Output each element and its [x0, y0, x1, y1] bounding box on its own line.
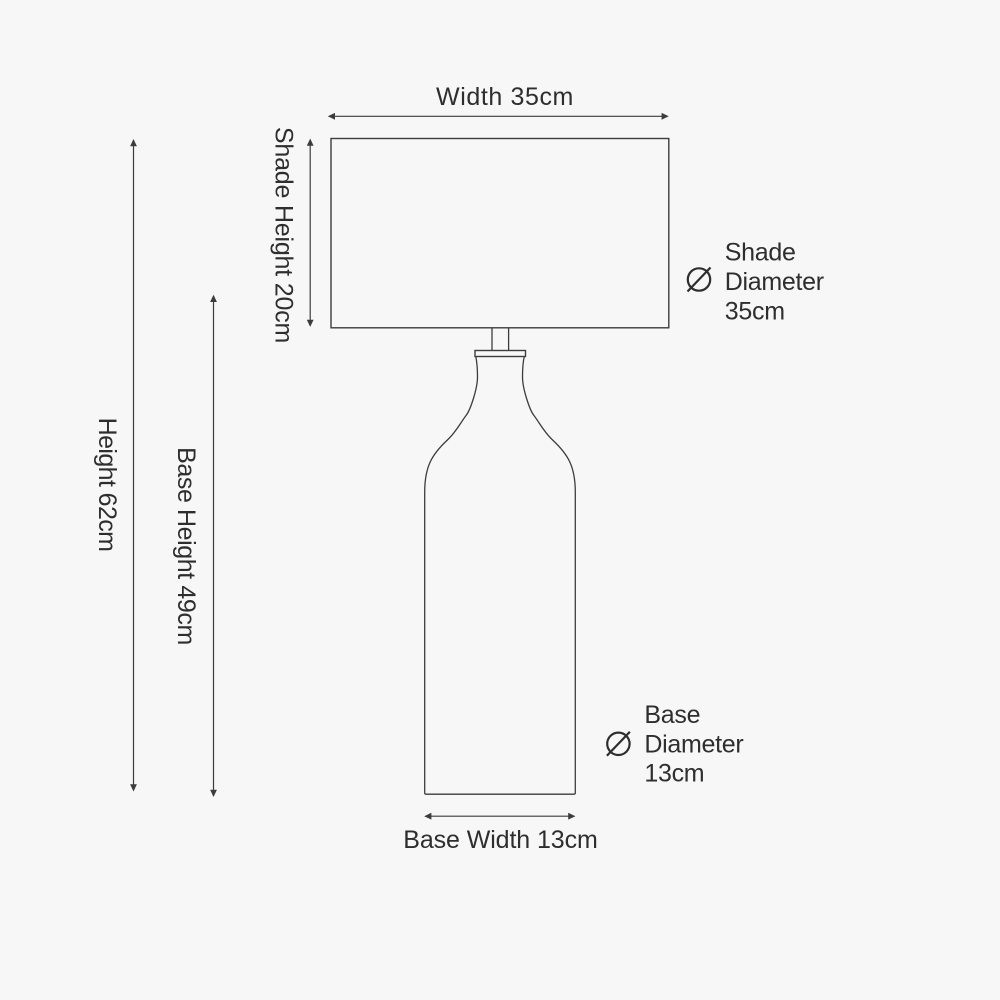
svg-text:Shade Height 20cm: Shade Height 20cm [270, 127, 298, 343]
svg-text:35cm: 35cm [725, 298, 785, 326]
svg-text:Base: Base [644, 701, 700, 729]
svg-text:Width 35cm: Width 35cm [436, 83, 574, 111]
svg-text:Shade: Shade [725, 239, 796, 267]
svg-text:Diameter: Diameter [725, 268, 824, 296]
svg-text:Base Height 49cm: Base Height 49cm [172, 447, 200, 645]
svg-text:13cm: 13cm [644, 760, 704, 788]
svg-text:Base Width 13cm: Base Width 13cm [403, 826, 597, 854]
svg-text:Diameter: Diameter [644, 730, 743, 758]
svg-text:Height 62cm: Height 62cm [93, 418, 121, 552]
